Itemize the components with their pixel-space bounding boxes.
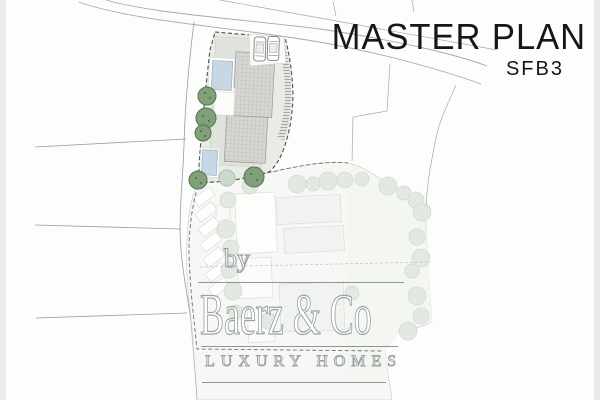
contour-line-1 (35, 139, 186, 147)
watermark-by: by (224, 244, 250, 274)
watermark-divider-bottom (202, 382, 386, 383)
contour-line-3 (36, 313, 187, 318)
page-edge-shade-right (594, 0, 600, 400)
car (254, 37, 266, 61)
car (267, 36, 279, 60)
page-subtitle: SFB3 (321, 58, 564, 81)
upper-parcel (189, 32, 293, 189)
contour-lines (35, 22, 197, 400)
watermark-tagline: LUXURY HOMES (201, 353, 401, 371)
master-plan-page: by Baerz & Co LUXURY HOMES MASTER PLAN S… (0, 0, 600, 400)
villa-roof-lower (224, 115, 267, 163)
contour-line-2 (35, 225, 181, 229)
page-edge-shade-left (0, 0, 6, 400)
survey-tick-2 (412, 0, 414, 12)
building-roof (283, 225, 344, 253)
title-block: MASTER PLAN SFB3 (321, 19, 586, 81)
tree-light (219, 170, 235, 186)
swimming-pool-upper (208, 57, 235, 92)
parking-pad (249, 34, 286, 66)
watermark-divider-middle (201, 346, 398, 347)
watermark-brand: Baerz & Co (200, 286, 372, 344)
survey-tick-1 (333, 1, 336, 16)
page-title: MASTER PLAN (332, 19, 586, 55)
parcel-line-right (426, 85, 456, 207)
building-roof (276, 194, 341, 224)
